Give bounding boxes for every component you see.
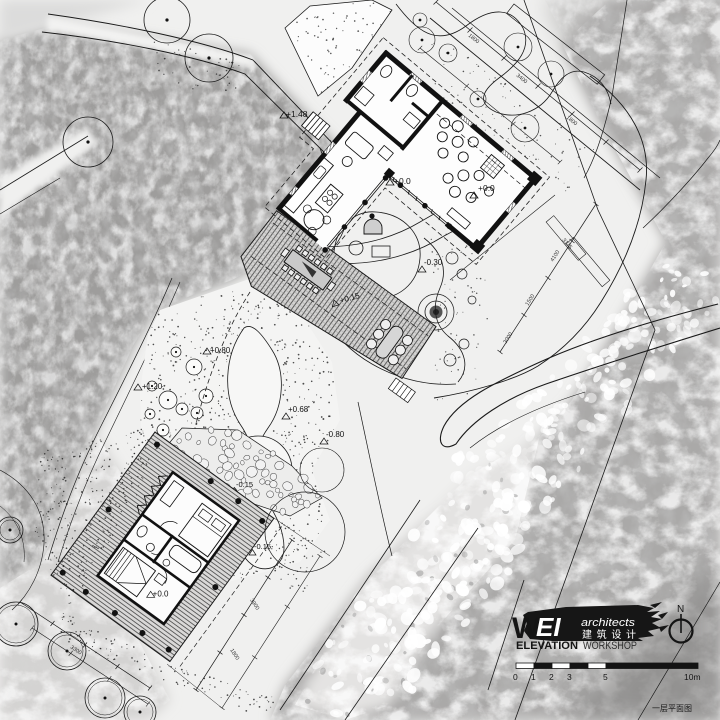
svg-text:+1.48: +1.48: [286, 109, 308, 119]
svg-text:2: 2: [549, 672, 554, 682]
svg-text:-0.30: -0.30: [424, 258, 443, 267]
svg-text:0: 0: [513, 672, 518, 682]
svg-text:-0.80: -0.80: [326, 430, 345, 439]
svg-text:ELEVATION: ELEVATION: [516, 640, 578, 652]
svg-text:+0.68: +0.68: [288, 405, 309, 414]
svg-text:+1.20: +1.20: [142, 382, 163, 391]
svg-text:+0.0: +0.0: [394, 176, 411, 186]
svg-text:1: 1: [531, 672, 536, 682]
svg-text:10m: 10m: [684, 672, 701, 682]
svg-text:-0.15: -0.15: [236, 480, 253, 489]
svg-text:architects: architects: [581, 617, 636, 629]
svg-text:3: 3: [567, 672, 572, 682]
svg-text:+0.0: +0.0: [153, 589, 169, 598]
svg-text:WORKSHOP: WORKSHOP: [583, 640, 637, 652]
svg-text:5: 5: [603, 672, 608, 682]
svg-text:EI: EI: [536, 612, 561, 642]
svg-text:一层平面图: 一层平面图: [652, 704, 692, 713]
svg-text:+0.0: +0.0: [478, 183, 495, 193]
svg-text:N: N: [677, 604, 684, 615]
